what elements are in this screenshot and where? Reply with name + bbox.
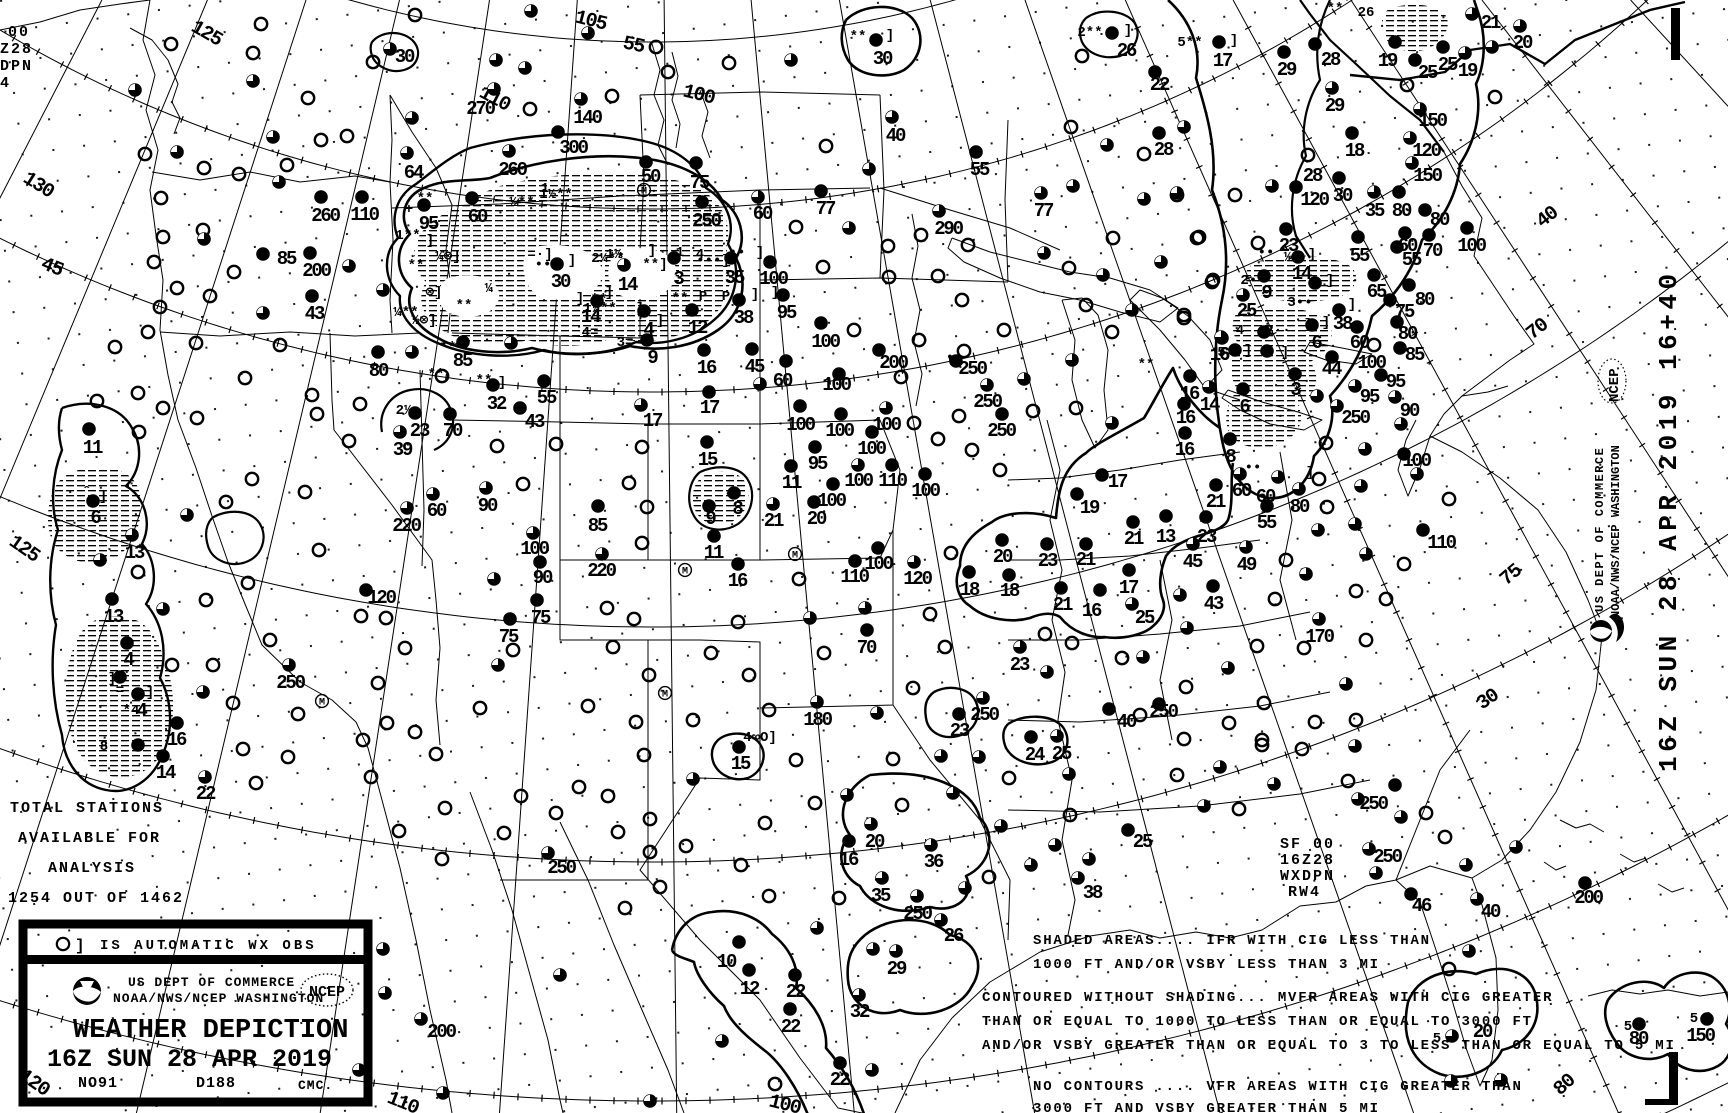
svg-text:RW4: RW4 (1288, 884, 1321, 901)
svg-text:**]: **] (642, 257, 667, 273)
svg-text:100: 100 (822, 374, 851, 396)
svg-text:80: 80 (1430, 209, 1450, 231)
svg-text:NO CONTOURS .... VFR AREAS WIT: NO CONTOURS .... VFR AREAS WITH CIG GREA… (1033, 1079, 1523, 1095)
svg-text:17: 17 (700, 397, 720, 419)
svg-text:110: 110 (350, 204, 379, 226)
svg-text:23: 23 (1038, 550, 1058, 572)
svg-text:95: 95 (777, 302, 797, 324)
svg-text:22: 22 (196, 783, 216, 805)
svg-text:40: 40 (1481, 901, 1501, 923)
svg-text:1½: 1½ (606, 247, 623, 263)
svg-text:250: 250 (276, 672, 305, 694)
svg-text:16Z28: 16Z28 (1280, 852, 1335, 869)
svg-text:5: 5 (1690, 1011, 1698, 1027)
svg-text:25: 25 (1418, 62, 1438, 84)
svg-text:¼⊗]: ¼⊗] (435, 249, 460, 265)
svg-text:25: 25 (1135, 607, 1155, 629)
svg-text:]: ] (751, 287, 759, 303)
svg-text:100: 100 (857, 438, 886, 460)
svg-text:80: 80 (1392, 200, 1412, 222)
svg-text:55: 55 (1257, 512, 1277, 534)
svg-text:1254 OUT OF 1462: 1254 OUT OF 1462 (8, 890, 184, 907)
svg-text:NCEP: NCEP (1607, 368, 1623, 402)
svg-text:14: 14 (618, 274, 638, 296)
svg-text:20: 20 (807, 508, 827, 530)
svg-text:100: 100 (520, 538, 549, 560)
svg-text:250: 250 (970, 704, 999, 726)
svg-text:**: ** (850, 29, 867, 45)
svg-text:25: 25 (1438, 54, 1458, 76)
svg-text:30: 30 (395, 46, 415, 68)
svg-text:½⊗]: ½⊗] (411, 313, 436, 329)
svg-text:••: •• (1245, 460, 1262, 476)
svg-text:180: 180 (803, 709, 832, 731)
svg-text:110: 110 (840, 566, 869, 588)
svg-text:4∞O]: 4∞O] (743, 730, 777, 746)
svg-text:22: 22 (786, 981, 806, 1003)
svg-text:11: 11 (83, 437, 103, 459)
svg-text:90: 90 (478, 495, 498, 517)
svg-text:]: ] (756, 245, 764, 261)
svg-text:22: 22 (1150, 74, 1170, 96)
svg-text:85: 85 (1405, 344, 1425, 366)
svg-text:23: 23 (410, 420, 430, 442)
svg-text:17: 17 (1213, 50, 1233, 72)
svg-text:16: 16 (839, 849, 859, 871)
svg-text:70: 70 (857, 637, 877, 659)
svg-text:]: ] (1230, 33, 1238, 49)
svg-text:60: 60 (753, 203, 773, 225)
svg-text:26: 26 (1358, 5, 1375, 21)
svg-text:250: 250 (692, 210, 721, 232)
svg-text:220: 220 (587, 560, 616, 582)
svg-text:17: 17 (1108, 471, 1128, 493)
svg-text:2••: 2•• (1240, 273, 1265, 289)
svg-text:85: 85 (588, 515, 608, 537)
svg-text:100: 100 (1457, 235, 1486, 257)
svg-text:35: 35 (725, 267, 745, 289)
svg-text:]: ] (1281, 345, 1289, 361)
svg-text:]: ] (1304, 317, 1312, 333)
svg-text:4=: 4= (582, 325, 599, 341)
svg-text:3=: 3= (617, 335, 634, 351)
svg-text:19: 19 (1378, 50, 1398, 72)
svg-text:*4: *4 (123, 703, 140, 719)
svg-text:55: 55 (537, 387, 557, 409)
svg-text:M: M (319, 698, 325, 709)
svg-text:250: 250 (958, 358, 987, 380)
svg-text:AND/OR VSBY GREATER THAN OR EQ: AND/OR VSBY GREATER THAN OR EQUAL TO 3 T… (982, 1038, 1676, 1054)
svg-text:]: ] (1308, 247, 1316, 263)
svg-text:••: •• (1258, 245, 1275, 261)
svg-text:200: 200 (1574, 887, 1603, 909)
svg-text:**: ** (456, 298, 473, 314)
svg-text:11: 11 (704, 542, 724, 564)
svg-text:**: ** (428, 367, 445, 383)
svg-text:22: 22 (781, 1016, 801, 1038)
svg-text:M: M (662, 690, 668, 701)
svg-text:IS AUTOMATIC WX OBS: IS AUTOMATIC WX OBS (100, 938, 317, 954)
svg-text:1: 1 (676, 245, 684, 261)
svg-text:80: 80 (1290, 496, 1310, 518)
svg-text:18: 18 (1345, 140, 1365, 162)
svg-text:50: 50 (641, 166, 661, 188)
svg-text:**: ** (1138, 357, 1155, 373)
svg-text:140: 140 (573, 107, 602, 129)
svg-text:21: 21 (1206, 491, 1226, 513)
svg-text:16: 16 (167, 729, 187, 751)
svg-text:35: 35 (1365, 200, 1385, 222)
svg-text:WEATHER DEPICTION: WEATHER DEPICTION (73, 1016, 348, 1046)
svg-text:21: 21 (1481, 12, 1501, 34)
svg-text:15: 15 (731, 753, 751, 775)
svg-text:NOAA/NWS/NCEP WASHINGTON: NOAA/NWS/NCEP WASHINGTON (1609, 445, 1623, 618)
svg-text:43: 43 (1204, 593, 1224, 615)
svg-text:29: 29 (1277, 59, 1297, 81)
svg-text:¼: ¼ (485, 281, 494, 297)
svg-text:5**: 5** (1177, 35, 1202, 51)
svg-text:DPN: DPN (0, 58, 33, 75)
svg-text:=: = (116, 683, 124, 699)
svg-text:150: 150 (1413, 165, 1442, 187)
svg-text:270: 270 (466, 98, 495, 120)
svg-text:80: 80 (1415, 289, 1435, 311)
svg-text:]: ] (75, 937, 85, 955)
svg-text:64: 64 (404, 162, 424, 184)
svg-text:120: 120 (903, 568, 932, 590)
svg-text:Z28: Z28 (0, 41, 33, 58)
svg-text:4: 4 (696, 247, 704, 263)
svg-text:1: 1 (541, 181, 549, 197)
svg-text:75: 75 (531, 607, 551, 629)
svg-text:95: 95 (1386, 371, 1406, 393)
svg-text:••: •• (729, 245, 746, 261)
svg-text:150: 150 (1418, 110, 1447, 132)
svg-text:M: M (641, 187, 647, 198)
svg-text:]: ] (636, 301, 644, 317)
svg-text:**: ** (672, 291, 689, 307)
svg-text:**: ** (408, 258, 425, 274)
svg-text:45: 45 (1183, 551, 1203, 573)
svg-text:D188: D188 (196, 1075, 236, 1092)
svg-text:5=': 5=' (1217, 345, 1242, 361)
svg-text:25: 25 (1052, 743, 1072, 765)
svg-text:ANALYSIS: ANALYSIS (48, 860, 136, 877)
svg-text:32: 32 (850, 1001, 870, 1023)
svg-text:]: ] (426, 233, 434, 249)
svg-text:3000 FT AND VSBY GREATER THAN: 3000 FT AND VSBY GREATER THAN 5 MI (1033, 1101, 1380, 1113)
svg-text:17: 17 (643, 410, 663, 432)
svg-text:NO91: NO91 (78, 1075, 118, 1092)
svg-text:60: 60 (427, 500, 447, 522)
svg-text:]: ] (1348, 297, 1356, 313)
svg-text:10: 10 (717, 951, 737, 973)
svg-text:21: 21 (764, 510, 784, 532)
svg-text:45: 45 (745, 356, 765, 378)
svg-text:3••: 3•• (1287, 295, 1312, 311)
svg-text:100: 100 (844, 470, 873, 492)
svg-text:250: 250 (987, 420, 1016, 442)
svg-text:=·]: =·] (527, 247, 552, 263)
svg-text:120: 120 (1300, 189, 1329, 211)
svg-text:11: 11 (782, 472, 802, 494)
svg-text:220: 220 (392, 515, 421, 537)
svg-text:4: 4 (1236, 323, 1244, 339)
svg-text:NCEP: NCEP (309, 984, 345, 1001)
svg-text:]: ] (1326, 273, 1334, 289)
svg-text:25: 25 (1133, 831, 1153, 853)
svg-text:00: 00 (8, 24, 30, 41)
svg-text:29: 29 (887, 958, 907, 980)
svg-text:M: M (792, 551, 798, 562)
svg-text:16Z SUN 28 APR 2019 16+40: 16Z SUN 28 APR 2019 16+40 (1654, 269, 1684, 772)
svg-text:100: 100 (825, 420, 854, 442)
svg-text:]: ] (498, 375, 506, 391)
svg-text:SHADED AREAS.... IFR WITH CIG: SHADED AREAS.... IFR WITH CIG LESS THAN (1033, 933, 1431, 949)
svg-text:**: ** (476, 373, 493, 389)
svg-text:]: ] (1322, 315, 1330, 331)
svg-text:70: 70 (1423, 240, 1443, 262)
svg-text:44: 44 (1322, 358, 1342, 380)
svg-text:260: 260 (498, 159, 527, 181)
svg-text:**: ** (1327, 1, 1344, 17)
svg-text:250: 250 (1341, 407, 1370, 429)
svg-text:WXDPN: WXDPN (1280, 868, 1335, 885)
svg-text:CMC.: CMC. (298, 1078, 333, 1093)
svg-text:250: 250 (1373, 846, 1402, 868)
svg-text:46: 46 (1412, 895, 1432, 917)
svg-text:15: 15 (698, 449, 718, 471)
svg-text:77: 77 (1034, 200, 1054, 222)
svg-text:]: ] (576, 291, 584, 307)
svg-text:30: 30 (551, 271, 571, 293)
svg-text:5: 5 (1624, 1019, 1632, 1035)
svg-text:200: 200 (302, 260, 331, 282)
svg-text:13: 13 (1156, 526, 1176, 548)
svg-text:38: 38 (1083, 882, 1103, 904)
svg-text:US DEPT OF COMMERCE: US DEPT OF COMMERCE (1593, 447, 1607, 612)
svg-text:85: 85 (277, 248, 297, 270)
svg-text:39: 39 (393, 439, 413, 461)
svg-text:½: ½ (1284, 250, 1293, 266)
svg-text:20: 20 (1513, 32, 1533, 54)
svg-text:20: 20 (865, 831, 885, 853)
svg-text:60: 60 (773, 370, 793, 392)
svg-text:21: 21 (1124, 528, 1144, 550)
svg-text:]: ] (108, 671, 116, 687)
svg-text:75: 75 (690, 172, 710, 194)
svg-text:½**: ½** (509, 195, 534, 211)
svg-text:18: 18 (1000, 580, 1020, 602)
svg-text:THAN OR EQUAL TO 1000 TO LESS: THAN OR EQUAL TO 1000 TO LESS THAN OR EQ… (982, 1014, 1533, 1030)
svg-text:13: 13 (104, 606, 124, 628)
svg-text:SF 00: SF 00 (1280, 836, 1335, 853)
svg-text:]: ] (648, 243, 656, 259)
svg-text:40: 40 (886, 125, 906, 147)
svg-text:•: • (946, 350, 954, 366)
svg-text:28: 28 (1303, 165, 1323, 187)
svg-text:200: 200 (427, 1021, 456, 1043)
svg-text:77: 77 (816, 198, 836, 220)
svg-text:90: 90 (533, 567, 553, 589)
svg-text:23: 23 (1197, 526, 1217, 548)
svg-text:4: 4 (0, 75, 11, 92)
svg-text:19: 19 (1080, 497, 1100, 519)
svg-text:2··: 2·· (1265, 323, 1290, 339)
svg-text:US DEPT OF COMMERCE: US DEPT OF COMMERCE (128, 975, 295, 990)
svg-text:14: 14 (1200, 394, 1220, 416)
svg-text:24: 24 (1025, 744, 1045, 766)
svg-text:12: 12 (740, 978, 760, 1000)
svg-text:NOAA/NWS/NCEP WASHINGTON: NOAA/NWS/NCEP WASHINGTON (113, 991, 324, 1006)
svg-text:P: P (699, 289, 707, 305)
svg-text:22: 22 (830, 1069, 850, 1091)
svg-text:]: ] (1244, 343, 1252, 359)
svg-text:43: 43 (525, 411, 545, 433)
svg-text:40: 40 (1117, 711, 1137, 733)
svg-text:23: 23 (950, 720, 970, 742)
svg-text:95: 95 (1360, 386, 1380, 408)
svg-text:1**: 1** (395, 228, 420, 244)
svg-text:95: 95 (419, 213, 439, 235)
svg-text:250: 250 (903, 903, 932, 925)
svg-text:23: 23 (1010, 654, 1030, 676)
svg-text:25: 25 (1237, 300, 1257, 322)
svg-text:30: 30 (1333, 185, 1353, 207)
svg-text:28: 28 (1154, 139, 1174, 161)
svg-text:**: ** (417, 191, 434, 207)
svg-text:49: 49 (1237, 554, 1257, 576)
svg-text:36: 36 (924, 851, 944, 873)
svg-text:150: 150 (1686, 1025, 1715, 1047)
svg-text:AVAILABLE FOR: AVAILABLE FOR (18, 830, 161, 847)
svg-text:]: ] (1306, 465, 1314, 481)
svg-text:8: 8 (100, 739, 108, 755)
svg-text:16: 16 (728, 570, 748, 592)
svg-text:TOTAL STATIONS: TOTAL STATIONS (10, 800, 164, 817)
svg-text:70: 70 (443, 420, 463, 442)
svg-text:32: 32 (487, 393, 507, 415)
svg-text:1000 FT AND/OR VSBY LESS THAN: 1000 FT AND/OR VSBY LESS THAN 3 MI (1033, 957, 1380, 973)
svg-text:]: ] (605, 285, 613, 301)
svg-text:250: 250 (547, 857, 576, 879)
svg-text:12: 12 (688, 317, 708, 339)
svg-text:16: 16 (1082, 600, 1102, 622)
svg-text:100: 100 (786, 414, 815, 436)
svg-text:21: 21 (1053, 594, 1073, 616)
svg-text:+: + (405, 202, 413, 218)
svg-text:]: ] (568, 253, 576, 269)
svg-text:290: 290 (934, 218, 963, 240)
svg-text:60: 60 (468, 206, 488, 228)
svg-text:80: 80 (369, 360, 389, 382)
svg-text:16: 16 (697, 357, 717, 379)
svg-text:19: 19 (1458, 60, 1478, 82)
svg-text:260: 260 (311, 205, 340, 227)
svg-text:]: ] (771, 285, 779, 301)
svg-text:17: 17 (1119, 577, 1139, 599)
svg-text:95: 95 (808, 453, 828, 475)
svg-text:38: 38 (734, 307, 754, 329)
svg-text:13: 13 (125, 542, 145, 564)
svg-text:100: 100 (911, 480, 940, 502)
svg-text:14: 14 (156, 762, 176, 784)
svg-text:29: 29 (1325, 95, 1345, 117)
svg-text:M: M (682, 567, 688, 578)
svg-text:55: 55 (1402, 249, 1422, 271)
svg-text:26: 26 (1117, 40, 1137, 62)
svg-text:]: ] (146, 685, 154, 701)
svg-text:2**: 2** (1077, 25, 1102, 41)
svg-text:100: 100 (864, 553, 893, 575)
svg-text:100: 100 (811, 331, 840, 353)
svg-text:43: 43 (305, 303, 325, 325)
svg-text:110: 110 (1427, 532, 1456, 554)
svg-text:110: 110 (878, 470, 907, 492)
svg-text:2½: 2½ (396, 403, 413, 419)
svg-text:16: 16 (1175, 439, 1195, 461)
svg-text:16: 16 (1176, 407, 1196, 429)
svg-text:P: P (722, 289, 730, 305)
svg-text:**: ** (440, 340, 457, 356)
svg-text:55: 55 (1350, 245, 1370, 267)
svg-text:30: 30 (873, 48, 893, 70)
svg-text:]: ] (886, 28, 894, 44)
svg-text:300: 300 (559, 137, 588, 159)
svg-text:55: 55 (970, 159, 990, 181)
svg-text:16Z SUN 28 APR 2019: 16Z SUN 28 APR 2019 (47, 1045, 332, 1074)
svg-text:26: 26 (944, 925, 964, 947)
svg-text:⊗]: ⊗] (426, 285, 443, 301)
svg-text:21: 21 (1076, 549, 1096, 571)
svg-text:CONTOURED WITHOUT SHADING... M: CONTOURED WITHOUT SHADING... MVFR AREAS … (982, 990, 1553, 1006)
svg-text:250: 250 (1149, 701, 1178, 723)
svg-text:60: 60 (1232, 480, 1252, 502)
svg-text:]: ] (656, 313, 664, 329)
svg-text:28: 28 (1321, 49, 1341, 71)
svg-text:18: 18 (960, 579, 980, 601)
svg-text:35: 35 (871, 885, 891, 907)
svg-text:]: ] (99, 489, 107, 505)
svg-text:250: 250 (1359, 793, 1388, 815)
svg-text:]: ] (1124, 23, 1132, 39)
svg-text:20: 20 (993, 546, 1013, 568)
svg-text:120: 120 (367, 587, 396, 609)
